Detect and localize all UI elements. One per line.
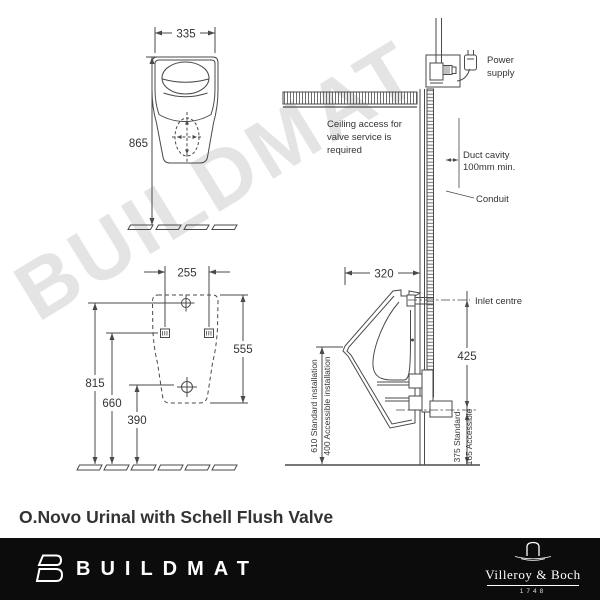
power-cable [457,69,470,81]
conduit-leader [446,191,474,198]
bottom-fixing-point [177,377,197,397]
front-view [128,27,237,230]
spec-sheet-page: BUILDMAT [0,0,600,600]
standard-install-label: 610 Standard installation [309,359,319,453]
duct-cavity-label-1: Duct cavity [463,150,510,161]
footer-bar: BUILDMAT Villeroy & Boch 1748 [0,538,600,600]
top-fixing-point [178,295,195,312]
dim-335: 335 [176,29,195,41]
basin-opening [162,62,209,94]
dim-320: 320 [374,269,393,281]
dim-555: 555 [233,344,252,356]
floor-hatch-front [128,225,237,230]
outlet-accessible-label: 165 Accessible [464,408,474,465]
outlet-standard-label: 375 Standard [452,411,462,462]
dim-255: 255 [177,268,196,280]
villeroy-boch-arch-icon [505,541,561,561]
manufacturer-logo: Villeroy & Boch 1748 [472,541,594,595]
power-supply-label-2: supply [487,68,515,79]
mounting-view [77,266,248,470]
ceiling-note-2: valve service is [327,132,392,143]
urinal-front-rim [155,60,215,122]
ceiling-note-3: required [327,145,362,156]
brand-wordmark: BUILDMAT [76,558,259,581]
manufacturer-rule [487,585,579,586]
manufacturer-name: Villeroy & Boch [472,567,594,583]
dim-815: 815 [85,378,104,390]
ceiling-hatch [283,92,417,104]
conduit-duct [427,89,434,397]
accessible-install-label: 400 Accessible installation [322,356,332,456]
dim-865: 865 [129,138,148,150]
dim-425: 425 [457,351,476,363]
flush-valve-box [426,55,460,87]
urinal-side-profile [343,290,420,428]
dim-660: 660 [102,398,121,410]
dim-390: 390 [127,415,146,427]
left-bracket [161,329,170,338]
manufacturer-year: 1748 [472,588,594,595]
power-plug-icon [465,50,477,70]
inlet-centre-label: Inlet centre [475,296,522,307]
right-bracket [205,329,214,338]
buildmat-logo-icon [30,552,68,584]
conduit-label: Conduit [476,194,509,205]
page-title: O.Novo Urinal with Schell Flush Valve [19,507,333,527]
power-supply-label-1: Power [487,55,514,66]
technical-drawing: 335 865 [0,0,600,538]
ceiling-note-1: Ceiling access for [327,119,402,130]
floor-hatch-mounting [77,465,237,470]
duct-cavity-label-2: 100mm min. [463,162,515,173]
